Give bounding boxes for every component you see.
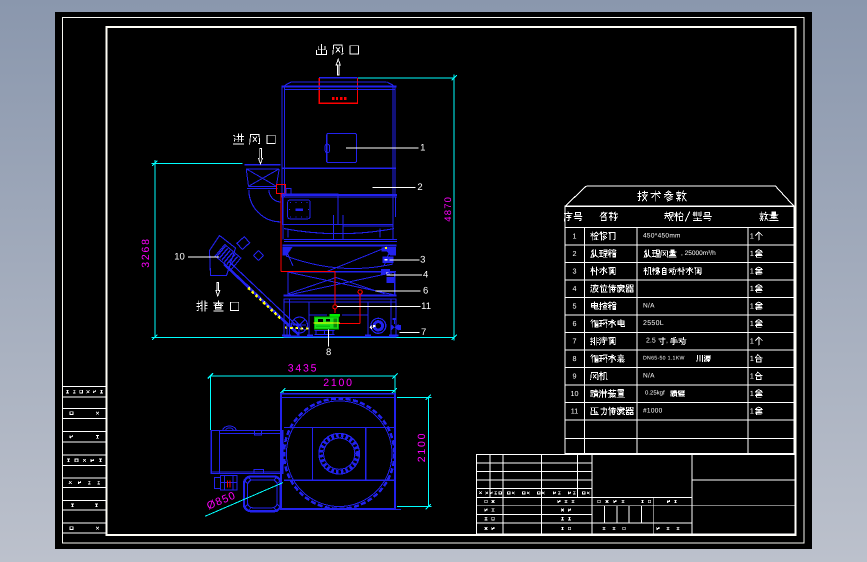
svg-text:1: 1 (750, 354, 754, 363)
svg-text:450*450mm: 450*450mm (643, 233, 681, 240)
svg-text:2100: 2100 (323, 377, 354, 389)
svg-text:1: 1 (750, 232, 754, 241)
svg-text:2.5: 2.5 (646, 338, 656, 345)
svg-text:3268: 3268 (140, 237, 152, 268)
svg-text:2100: 2100 (416, 432, 428, 463)
svg-text:9: 9 (573, 372, 577, 381)
svg-text:6: 6 (423, 286, 428, 297)
svg-text:4: 4 (423, 270, 428, 281)
svg-text:5: 5 (573, 302, 577, 311)
svg-text:10: 10 (174, 252, 185, 263)
svg-text:1: 1 (750, 337, 754, 346)
svg-text:7: 7 (421, 327, 426, 338)
svg-text:1: 1 (750, 284, 754, 293)
svg-text:11: 11 (571, 407, 578, 416)
svg-text:1: 1 (750, 407, 754, 416)
svg-text:3: 3 (573, 267, 577, 276)
svg-text:DN65-50 1.1KW: DN65-50 1.1KW (643, 356, 685, 362)
svg-text:2: 2 (417, 182, 422, 193)
svg-text:#1000: #1000 (643, 408, 663, 415)
svg-text:11: 11 (421, 301, 431, 312)
svg-text:1: 1 (750, 389, 754, 398)
svg-text:7: 7 (573, 337, 577, 346)
svg-text:1: 1 (750, 302, 754, 311)
svg-text:N/A: N/A (643, 373, 655, 380)
svg-text:8: 8 (573, 354, 577, 363)
svg-text:1: 1 (750, 249, 754, 258)
svg-text:,: , (666, 338, 668, 345)
svg-text:2: 2 (573, 249, 577, 258)
svg-text:3: 3 (420, 255, 425, 266)
svg-text:10: 10 (571, 389, 579, 398)
svg-text:0.25kgf: 0.25kgf (645, 390, 665, 397)
svg-text:2550L: 2550L (643, 320, 664, 327)
svg-text:1: 1 (750, 267, 754, 276)
svg-text:4870: 4870 (443, 196, 454, 222)
svg-text:N/A: N/A (643, 303, 655, 310)
svg-text:1: 1 (420, 143, 425, 154)
svg-text:3435: 3435 (288, 362, 319, 374)
svg-text:1: 1 (573, 232, 577, 241)
svg-text:1: 1 (750, 372, 754, 381)
svg-text:4: 4 (573, 284, 577, 293)
svg-text:1: 1 (750, 319, 754, 328)
svg-text:6: 6 (573, 319, 577, 328)
svg-text:, 25000m³/h: , 25000m³/h (681, 250, 716, 257)
svg-text:8: 8 (326, 347, 331, 358)
